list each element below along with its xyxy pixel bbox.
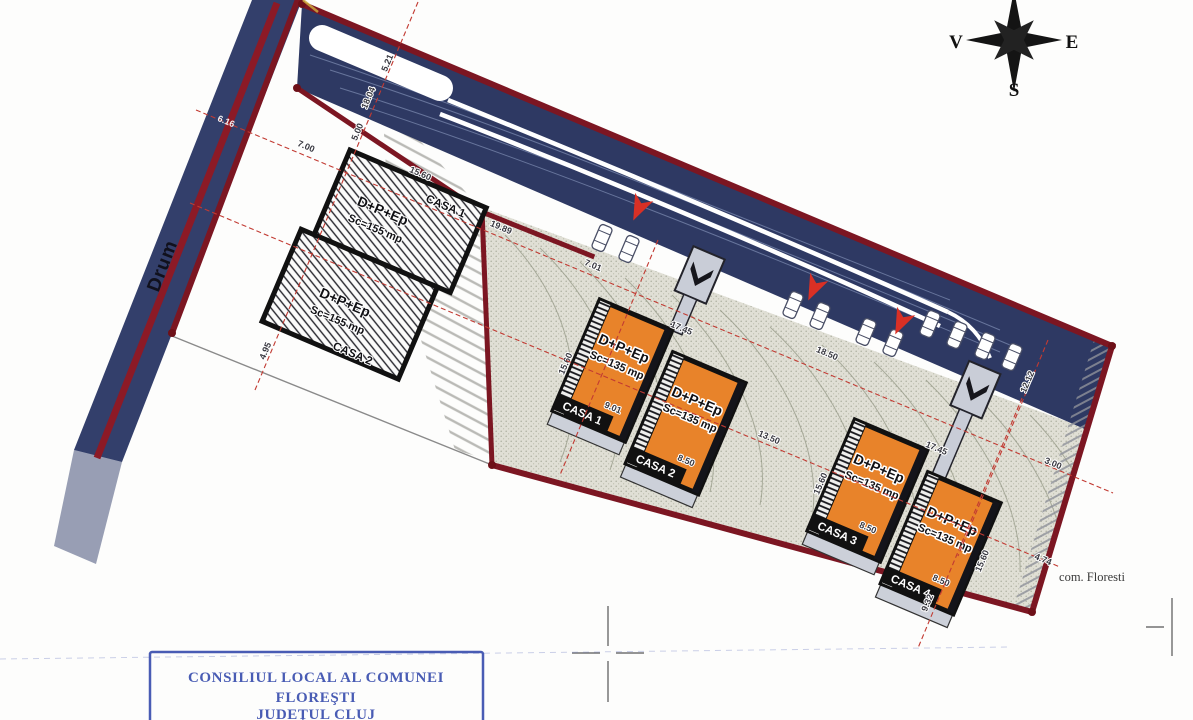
stamp-line-1: CONSILIUL LOCAL AL COMUNEI [188,670,444,686]
neighbor-label: com. Floresti [1059,570,1125,584]
stamp-line-3: JUDEŢUL CLUJ [256,707,375,720]
stamp-line-2: FLOREŞTI [276,690,357,706]
compass-east-label: E [1066,32,1079,53]
compass-south-label: S [1009,80,1020,101]
site-plan: Drum 15.60 CASA 1 D+P+Ep Sc=155 mp D+P+E… [0,0,1193,720]
compass-west-label: V [949,32,963,53]
